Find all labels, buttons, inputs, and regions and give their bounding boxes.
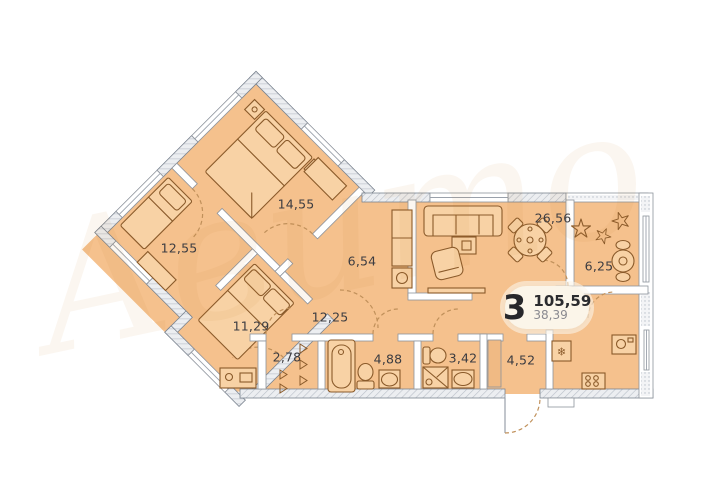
room-area-label-living-kitchen: 26,56	[535, 211, 572, 226]
fridge-snowflake-icon: ❄	[557, 346, 566, 359]
room-area-label-bedroom-lower: 11,29	[233, 319, 270, 334]
floor-plan-page: ❄ Авито 14,55 12,55 11,29 6,54 12,25 2,7…	[0, 0, 720, 500]
room-area-label-corridor: 12,25	[312, 310, 349, 325]
living-area-value: 38,39	[533, 309, 591, 322]
total-area-value: 105,59	[533, 293, 591, 310]
toilet-bathroom	[357, 364, 374, 390]
bathtub	[328, 340, 355, 392]
entrance-door	[505, 398, 540, 433]
kitchen-sink	[612, 335, 636, 354]
hall-cabinet	[392, 210, 412, 288]
desk-lower-bedroom	[220, 368, 256, 388]
tv-console	[428, 288, 485, 293]
floor-plan-canvas: ❄	[0, 0, 720, 500]
room-area-label-entry-hall: 4,52	[507, 353, 536, 368]
stove	[582, 373, 605, 389]
apartment-summary-badge: 3 105,59 38,39	[505, 286, 589, 329]
duct-shaft	[488, 340, 501, 387]
rooms-count: 3	[503, 291, 527, 325]
room-area-label-bathroom: 4,88	[374, 352, 403, 367]
toilet-wc	[423, 347, 446, 364]
room-area-label-balcony: 6,25	[585, 259, 614, 274]
sink-wc	[452, 370, 474, 388]
room-area-label-shower-wc: 3,42	[449, 351, 478, 366]
room-area-label-wardrobe: 2,78	[273, 350, 302, 365]
sink-bathroom	[379, 370, 400, 388]
entry-step	[548, 398, 574, 407]
shower-tray	[423, 367, 448, 388]
room-area-label-bedroom-main: 14,55	[278, 197, 315, 212]
sofa	[424, 206, 502, 236]
entrance-door-arc	[505, 398, 540, 433]
fridge: ❄	[552, 341, 571, 361]
room-area-label-inner-hall: 6,54	[348, 254, 377, 269]
room-area-label-bedroom-left: 12,55	[161, 241, 198, 256]
